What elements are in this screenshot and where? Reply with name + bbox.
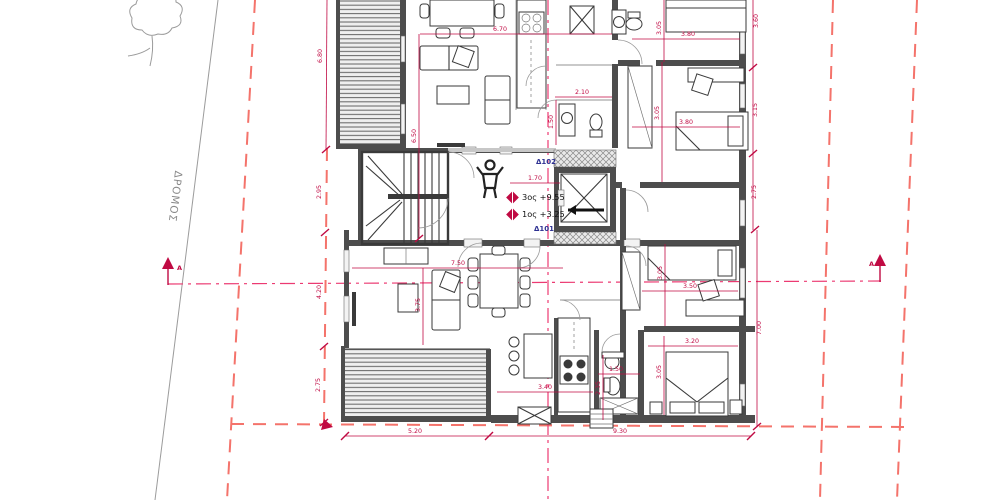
setback-line-left — [324, 148, 327, 424]
dim-setback-left-2: 2.95 — [316, 185, 323, 199]
boundary-line-right-outer — [897, 0, 917, 500]
dim-br3-w: 3.50 — [683, 283, 697, 290]
bedroom3-furniture — [622, 246, 744, 316]
entrance-step-right — [590, 409, 613, 428]
sofa-bottom — [398, 270, 460, 330]
dim-right-3: 2.75 — [751, 185, 758, 199]
level-text-lower: 1ος +3.25 — [522, 209, 565, 219]
section-label-left: A — [177, 264, 182, 272]
dim-bath-bottom-w: 1.50 — [609, 366, 623, 373]
dining-table-bottom — [468, 246, 530, 317]
level-marker-upper — [506, 191, 519, 204]
entrance-step-left — [518, 407, 551, 424]
dim-setback-left-3: 4.20 — [316, 285, 323, 299]
level-marker-lower — [506, 208, 519, 221]
bar-counter — [509, 334, 552, 378]
floor-plan-canvas: ΔΡΟΜΟΣ A A — [0, 0, 1000, 500]
dim-living-top-w: 6.70 — [493, 26, 507, 33]
dim-kitchen-top-h: 1.50 — [548, 115, 555, 129]
tree-icon — [128, 0, 182, 66]
dim-living-bottom-h: 3.75 — [415, 298, 422, 312]
kitchen-bottom — [558, 318, 590, 412]
road-edge-line — [155, 0, 218, 500]
dim-living-top-h: 6.50 — [411, 129, 418, 143]
dim-br2-h: 3.05 — [654, 106, 661, 120]
dim-br2-w: 3.80 — [679, 119, 693, 126]
dim-right-total: 7.00 — [756, 321, 763, 335]
bathroom-top-middle — [559, 104, 602, 137]
ventilation-shaft — [570, 6, 594, 34]
dim-setback-left-1: 6.80 — [317, 49, 324, 63]
bedroom2-furniture — [628, 66, 748, 150]
apartment-label-101: Δ101 — [534, 225, 554, 233]
section-arrow-right — [874, 254, 886, 282]
dim-br4-h: 3.05 — [656, 365, 663, 379]
level-text-upper: 3ος +9.55 — [522, 192, 565, 202]
dim-br4-w: 3.20 — [685, 338, 699, 345]
dim-hall-w: 1.70 — [528, 175, 542, 182]
person-figure — [477, 161, 503, 199]
dim-right-2: 3.15 — [752, 103, 759, 117]
balcony-bottom-left — [341, 346, 491, 422]
staircase — [362, 152, 448, 244]
boundary-line-right-inner — [820, 0, 833, 500]
site-plan-svg: ΔΡΟΜΟΣ A A — [0, 0, 1000, 500]
kitchen-top — [517, 0, 546, 108]
section-arrow-left — [162, 257, 174, 285]
bathroom-bottom — [600, 352, 638, 414]
apartment-label-102: Δ102 — [536, 158, 556, 166]
dim-bath-bottom-h: 2.35 — [595, 381, 602, 395]
sofa-top — [420, 46, 510, 147]
dim-plot-bottom-left: 5.20 — [408, 428, 422, 435]
dim-setback-left-4: 2.75 — [315, 378, 322, 392]
dim-br1-h: 3.05 — [656, 21, 663, 35]
bathroom-top-right — [612, 10, 642, 34]
dim-bath-top-w: 2.10 — [575, 89, 589, 96]
road-label: ΔΡΟΜΟΣ — [166, 170, 184, 223]
dining-table-top — [420, 0, 504, 38]
bedroom1-bed — [666, 0, 746, 32]
dim-right-1: 3.60 — [753, 14, 760, 28]
dim-br1-w: 3.80 — [681, 31, 695, 38]
section-label-right: A — [869, 260, 874, 268]
balcony-top-left — [336, 0, 406, 149]
dim-living-bottom-w: 7.50 — [451, 260, 465, 267]
dim-br3-h: 3.05 — [657, 266, 664, 280]
dim-plot-bottom-right: 9.30 — [613, 428, 627, 435]
dim-kitchen-bottom-w: 3.40 — [538, 384, 552, 391]
